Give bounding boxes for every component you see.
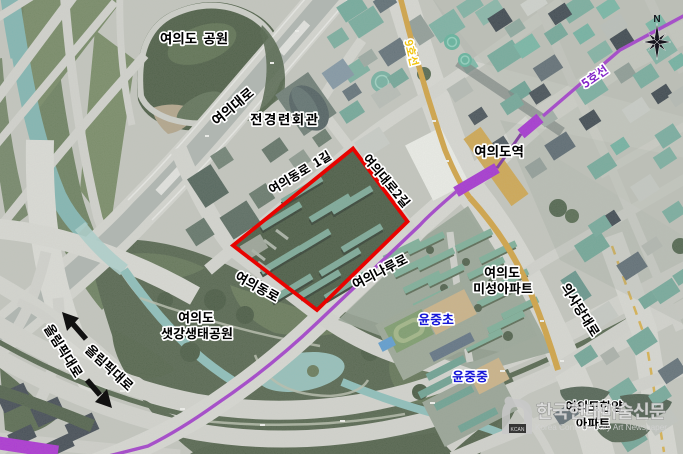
svg-text:KCAN: KCAN [511,427,525,433]
svg-text:Korea Contemporary Art Newspap: Korea Contemporary Art Newspaper [535,423,667,432]
svg-text:N: N [653,14,660,25]
